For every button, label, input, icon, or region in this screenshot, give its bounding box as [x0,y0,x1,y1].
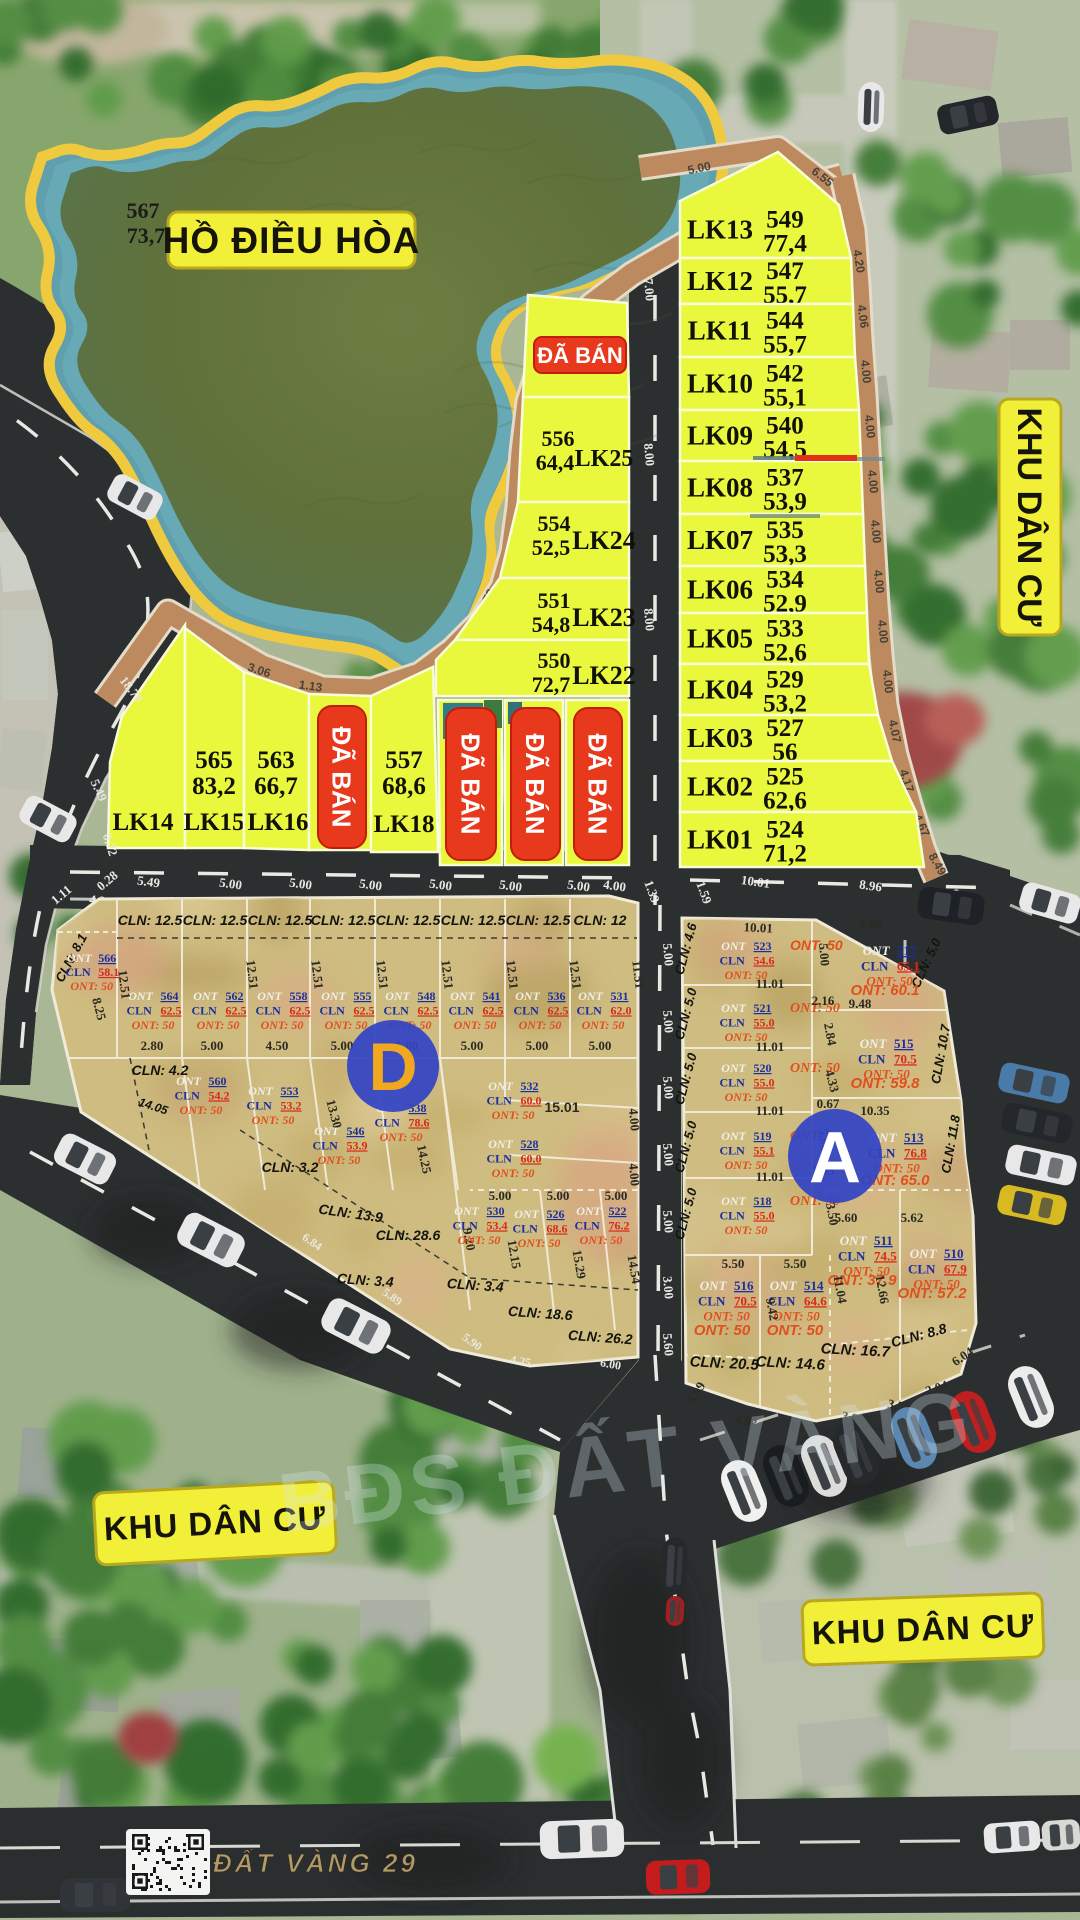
svg-text:529: 529 [766,667,804,694]
svg-text:CLN: 12.5: CLN: 12.5 [506,912,571,928]
svg-text:565: 565 [195,747,233,774]
svg-text:62.0: 62.0 [611,1003,632,1017]
svg-text:ONT: ONT [450,989,475,1003]
svg-text:62.5: 62.5 [290,1003,311,1017]
svg-text:5.00: 5.00 [201,1038,224,1053]
svg-text:524: 524 [766,817,804,844]
svg-text:11.01: 11.01 [756,1039,785,1054]
svg-text:ONT: ONT [515,989,540,1003]
svg-text:54.6: 54.6 [754,953,775,967]
svg-text:53,3: 53,3 [763,541,807,568]
svg-text:ĐÃ BÁN: ĐÃ BÁN [537,343,623,368]
svg-text:528: 528 [521,1137,539,1151]
svg-text:CLN: CLN [487,1093,513,1107]
svg-text:CLN: CLN [861,958,889,973]
svg-text:11.01: 11.01 [756,976,785,991]
svg-text:554: 554 [538,511,571,536]
svg-text:ĐÃ BÁN: ĐÃ BÁN [456,733,486,834]
svg-text:ONT: ONT [721,939,746,953]
svg-text:78.6: 78.6 [409,1115,430,1129]
svg-text:LK13: LK13 [687,215,753,245]
svg-text:D: D [368,1029,417,1105]
svg-text:62.5: 62.5 [354,1003,375,1017]
svg-text:544: 544 [766,308,804,335]
svg-text:516: 516 [734,1278,754,1293]
svg-text:5.00: 5.00 [461,1038,484,1053]
svg-text:LK24: LK24 [572,526,636,555]
svg-text:535: 535 [766,517,804,544]
svg-text:ONT: ONT [840,1233,868,1248]
svg-text:5.60: 5.60 [835,1210,858,1225]
svg-text:15.01: 15.01 [544,1099,579,1115]
svg-text:4.00: 4.00 [602,877,627,895]
svg-text:LK11: LK11 [688,316,753,346]
svg-text:66,7: 66,7 [254,773,298,800]
svg-text:55,1: 55,1 [763,385,807,412]
svg-text:514: 514 [804,1278,824,1293]
svg-text:557: 557 [385,747,423,774]
svg-text:62,6: 62,6 [763,788,807,815]
svg-text:LK02: LK02 [687,772,753,802]
svg-text:ONT: ONT [721,1129,746,1143]
svg-text:HỒ ĐIỀU HÒA: HỒ ĐIỀU HÒA [163,219,421,261]
svg-text:4.00: 4.00 [626,1163,643,1187]
svg-text:55.0: 55.0 [754,1208,775,1222]
svg-text:LK22: LK22 [572,661,636,690]
svg-text:549: 549 [766,207,804,234]
svg-text:5.00: 5.00 [489,1188,512,1203]
svg-text:CLN: CLN [720,1208,746,1222]
svg-text:LK09: LK09 [687,421,753,451]
svg-text:CLN: 12.5: CLN: 12.5 [183,912,248,928]
svg-text:ĐÃ BÁN: ĐÃ BÁN [327,726,357,827]
svg-text:5.49: 5.49 [136,873,161,891]
svg-text:ONT: 50: ONT: 50 [132,1018,175,1032]
svg-text:CLN: CLN [720,1075,746,1089]
svg-text:ONT: ONT [721,1001,746,1015]
svg-text:551: 551 [538,588,571,613]
svg-text:LK18: LK18 [373,811,434,838]
svg-text:ONT: ONT [910,1246,938,1261]
svg-text:68.6: 68.6 [547,1221,568,1235]
svg-text:ONT: 50: ONT: 50 [70,979,113,993]
svg-text:ONT: ONT [176,1074,201,1088]
svg-text:KHU DÂN CƯ: KHU DÂN CƯ [1010,408,1048,628]
svg-text:513: 513 [904,1130,924,1145]
svg-text:540: 540 [766,413,804,440]
svg-text:LK16: LK16 [247,809,308,836]
svg-text:ONT: 50: ONT: 50 [519,1018,562,1032]
svg-text:ONT: 57.2: ONT: 57.2 [898,1285,968,1302]
svg-text:CLN: CLN [247,1098,273,1112]
svg-text:ONT: 50: ONT: 50 [458,1233,501,1247]
svg-text:541: 541 [483,989,501,1003]
svg-text:558: 558 [290,989,308,1003]
svg-text:LK07: LK07 [687,525,753,555]
svg-text:7.00: 7.00 [641,278,658,302]
svg-text:563: 563 [257,747,295,774]
svg-text:55,7: 55,7 [763,332,807,359]
svg-text:CLN: CLN [256,1003,282,1017]
svg-text:ONT: ONT [578,989,603,1003]
svg-text:CLN: CLN [838,1248,866,1263]
svg-text:5.50: 5.50 [784,1256,807,1271]
svg-text:ONT: 50: ONT: 50 [454,1018,497,1032]
svg-text:CLN: CLN [487,1151,513,1165]
svg-text:ONT: ONT [721,1061,746,1075]
svg-text:53,2: 53,2 [763,691,807,718]
svg-text:CLN: CLN [514,1003,540,1017]
svg-text:531: 531 [611,989,629,1003]
svg-text:ONT: ONT [385,989,410,1003]
svg-text:76.8: 76.8 [904,1145,927,1160]
svg-text:CLN: CLN [720,1015,746,1029]
svg-text:ONT: ONT [257,989,282,1003]
svg-text:5.00: 5.00 [428,876,453,894]
svg-text:525: 525 [766,764,804,791]
svg-text:ONT: 50: ONT: 50 [325,1018,368,1032]
svg-text:567: 567 [127,198,160,223]
svg-text:71,2: 71,2 [763,841,807,868]
svg-text:526: 526 [547,1207,565,1221]
svg-text:ONT: 50: ONT: 50 [252,1113,295,1127]
svg-text:LK06: LK06 [687,575,753,605]
svg-text:ONT: ONT [248,1084,273,1098]
svg-text:4.00: 4.00 [626,1108,643,1132]
svg-text:548: 548 [418,989,436,1003]
svg-text:5.00: 5.00 [288,875,313,893]
svg-text:LK10: LK10 [687,369,753,399]
svg-text:54.2: 54.2 [209,1088,230,1102]
svg-text:2.80: 2.80 [141,1038,164,1053]
svg-text:ONT: 50: ONT: 50 [725,1223,768,1237]
svg-text:564: 564 [161,989,179,1003]
svg-text:53.9: 53.9 [347,1138,368,1152]
svg-text:CLN: 3.2: CLN: 3.2 [262,1159,319,1175]
svg-text:5.00: 5.00 [816,943,833,967]
svg-text:555: 555 [354,989,372,1003]
svg-text:4.00: 4.00 [871,569,887,594]
svg-text:54,8: 54,8 [532,612,571,637]
svg-text:11.01: 11.01 [756,1103,785,1118]
svg-text:83,2: 83,2 [192,773,236,800]
svg-text:CLN: CLN [449,1003,475,1017]
svg-text:11.01: 11.01 [756,1169,785,1184]
svg-text:547: 547 [766,258,804,285]
svg-text:ONT: ONT [863,943,891,958]
svg-text:9.48: 9.48 [849,996,872,1011]
svg-text:CLN: CLN [65,965,91,979]
svg-text:ONT: 50: ONT: 50 [380,1130,423,1144]
svg-text:ONT: 59.8: ONT: 59.8 [851,1075,921,1092]
svg-text:4.50: 4.50 [266,1038,289,1053]
svg-text:CLN: 12.5: CLN: 12.5 [376,912,441,928]
svg-text:CLN: CLN [575,1218,601,1232]
svg-text:ONT: 50: ONT: 50 [318,1153,361,1167]
svg-text:53.4: 53.4 [487,1218,508,1232]
svg-text:566: 566 [98,951,116,965]
svg-text:5.00: 5.00 [498,877,523,895]
svg-text:4.00: 4.00 [880,669,896,694]
svg-text:ONT: ONT [488,1137,513,1151]
svg-text:ĐÃ BÁN: ĐÃ BÁN [520,733,550,834]
svg-text:546: 546 [347,1124,365,1138]
svg-text:CLN: CLN [320,1003,346,1017]
svg-text:60.0: 60.0 [521,1151,542,1165]
svg-text:8.96: 8.96 [858,877,883,895]
svg-text:ONT: 50: ONT: 50 [197,1018,240,1032]
svg-text:LK25: LK25 [575,446,634,472]
svg-text:CLN: 12.5: CLN: 12.5 [118,912,183,928]
svg-text:CLN: CLN [384,1003,410,1017]
svg-text:CLN: 12.5: CLN: 12.5 [441,912,506,928]
svg-text:ONT: ONT [314,1124,339,1138]
svg-text:KHU DÂN CƯ: KHU DÂN CƯ [811,1607,1035,1652]
svg-text:4.00: 4.00 [858,359,874,384]
svg-text:65.1: 65.1 [897,958,920,973]
svg-text:60.0: 60.0 [521,1093,542,1107]
svg-text:537: 537 [766,465,804,492]
svg-text:ONT: ONT [721,1194,746,1208]
svg-text:LK08: LK08 [687,473,753,503]
svg-text:527: 527 [766,715,804,742]
svg-text:CLN: 12.5: CLN: 12.5 [248,912,313,928]
svg-text:55.1: 55.1 [754,1143,775,1157]
svg-text:53.2: 53.2 [281,1098,302,1112]
svg-text:ONT: 50: ONT: 50 [492,1166,535,1180]
svg-text:534: 534 [766,567,804,594]
svg-text:70.5: 70.5 [894,1051,917,1066]
svg-text:74.5: 74.5 [874,1248,897,1263]
svg-text:ONT: 50: ONT: 50 [180,1103,223,1117]
svg-text:53,9: 53,9 [763,489,807,516]
svg-text:CLN: CLN [375,1115,401,1129]
svg-text:560: 560 [209,1074,227,1088]
svg-text:LK01: LK01 [687,825,753,855]
svg-text:ONT: ONT [700,1278,728,1293]
svg-text:52,5: 52,5 [532,535,571,560]
svg-text:4.00: 4.00 [862,414,878,439]
svg-text:ONT: 50: ONT: 50 [767,1322,824,1339]
svg-text:62.5: 62.5 [548,1003,569,1017]
svg-text:5.60: 5.60 [660,1333,677,1357]
svg-text:0.67: 0.67 [817,1096,840,1111]
svg-text:CLN: CLN [175,1088,201,1102]
svg-text:517: 517 [897,943,917,958]
svg-text:536: 536 [548,989,566,1003]
svg-text:562: 562 [226,989,244,1003]
svg-text:ONT: 50: ONT: 50 [694,1322,751,1339]
svg-text:4.00: 4.00 [865,469,881,494]
svg-text:LK15: LK15 [183,809,244,836]
svg-text:ONT: ONT [488,1079,513,1093]
svg-text:LK04: LK04 [687,675,753,705]
svg-text:ONT: 50: ONT: 50 [582,1018,625,1032]
svg-text:532: 532 [521,1079,539,1093]
svg-text:CLN: CLN [858,1051,886,1066]
svg-text:521: 521 [754,1001,772,1015]
svg-text:5.00: 5.00 [547,1188,570,1203]
svg-text:ONT: ONT [514,1207,539,1221]
svg-text:ONT: 50: ONT: 50 [580,1233,623,1247]
svg-text:556: 556 [542,426,575,451]
svg-text:55.0: 55.0 [754,1075,775,1089]
svg-text:CLN: 12.5: CLN: 12.5 [311,912,376,928]
svg-text:55.0: 55.0 [754,1015,775,1029]
svg-text:550: 550 [538,648,571,673]
svg-text:62.5: 62.5 [418,1003,439,1017]
svg-text:52,6: 52,6 [763,640,807,667]
svg-text:A: A [809,1118,861,1198]
svg-text:67.9: 67.9 [944,1261,967,1276]
svg-text:5.00: 5.00 [589,1038,612,1053]
svg-text:2.16: 2.16 [812,993,835,1008]
svg-text:CLN: CLN [453,1218,479,1232]
svg-text:510: 510 [944,1246,964,1261]
svg-text:518: 518 [754,1194,772,1208]
svg-text:CLN: CLN [577,1003,603,1017]
svg-text:5.00: 5.00 [605,1188,628,1203]
svg-text:530: 530 [487,1204,505,1218]
svg-text:8.00: 8.00 [641,608,658,632]
svg-text:62.5: 62.5 [226,1003,247,1017]
svg-text:ONT: ONT [770,1278,798,1293]
svg-text:LK05: LK05 [687,624,753,654]
svg-text:64,4: 64,4 [536,450,575,475]
svg-text:62.5: 62.5 [483,1003,504,1017]
svg-text:4.00: 4.00 [868,519,884,544]
svg-text:ONT: ONT [321,989,346,1003]
svg-text:4.00: 4.00 [875,619,891,644]
svg-text:523: 523 [754,939,772,953]
svg-text:CLN: CLN [908,1261,936,1276]
svg-text:ĐẤT VÀNG 29: ĐẤT VÀNG 29 [213,1848,418,1878]
svg-text:5.00: 5.00 [218,875,243,893]
svg-text:CLN: CLN [698,1293,726,1308]
svg-text:553: 553 [281,1084,299,1098]
svg-text:ONT: 50: ONT: 50 [261,1018,304,1032]
svg-text:520: 520 [754,1061,772,1075]
svg-text:62.5: 62.5 [161,1003,182,1017]
svg-text:68,6: 68,6 [382,773,426,800]
svg-text:533: 533 [766,616,804,643]
svg-text:ĐÃ BÁN: ĐÃ BÁN [583,733,613,834]
svg-text:ONT: 50: ONT: 50 [518,1236,561,1250]
svg-text:ONT: ONT [454,1204,479,1218]
svg-text:3.00: 3.00 [660,1276,677,1300]
svg-text:5.00: 5.00 [358,876,383,894]
svg-text:ONT: ONT [576,1204,601,1218]
svg-text:10.35: 10.35 [860,1103,890,1118]
svg-text:64.6: 64.6 [804,1293,827,1308]
svg-text:CLN: CLN [192,1003,218,1017]
svg-text:CLN: CLN [513,1221,539,1235]
svg-text:10.01: 10.01 [743,919,773,936]
svg-text:511: 511 [874,1233,893,1248]
svg-text:CLN: 28.6: CLN: 28.6 [376,1227,441,1243]
svg-text:LK12: LK12 [687,266,753,296]
svg-text:5.00: 5.00 [566,877,591,895]
svg-text:72,7: 72,7 [532,672,571,697]
svg-text:LK03: LK03 [687,723,753,753]
svg-text:ONT: 50: ONT: 50 [492,1108,535,1122]
svg-text:CLN: 12: CLN: 12 [574,912,627,928]
svg-text:CLN: CLN [720,1143,746,1157]
svg-text:73,7: 73,7 [127,223,166,248]
svg-text:CLN: CLN [127,1003,153,1017]
svg-text:8.96: 8.96 [858,915,882,931]
svg-text:5.50: 5.50 [722,1256,745,1271]
svg-text:8.00: 8.00 [641,443,658,467]
svg-text:LK14: LK14 [112,809,174,836]
svg-text:ONT: ONT [193,989,218,1003]
svg-text:CLN: CLN [720,953,746,967]
svg-text:CLN: CLN [313,1138,339,1152]
svg-text:ONT: ONT [67,951,92,965]
svg-text:519: 519 [754,1129,772,1143]
svg-text:5.62: 5.62 [901,1210,924,1225]
svg-text:LK23: LK23 [572,603,636,632]
svg-text:77,4: 77,4 [763,231,807,258]
svg-text:76.2: 76.2 [609,1218,630,1232]
svg-text:542: 542 [766,361,804,388]
svg-text:ONT: 50: ONT: 50 [725,1090,768,1104]
svg-text:515: 515 [894,1036,914,1051]
svg-text:5.00: 5.00 [526,1038,549,1053]
svg-text:522: 522 [609,1204,627,1218]
svg-text:ONT: ONT [860,1036,888,1051]
svg-text:70.5: 70.5 [734,1293,757,1308]
